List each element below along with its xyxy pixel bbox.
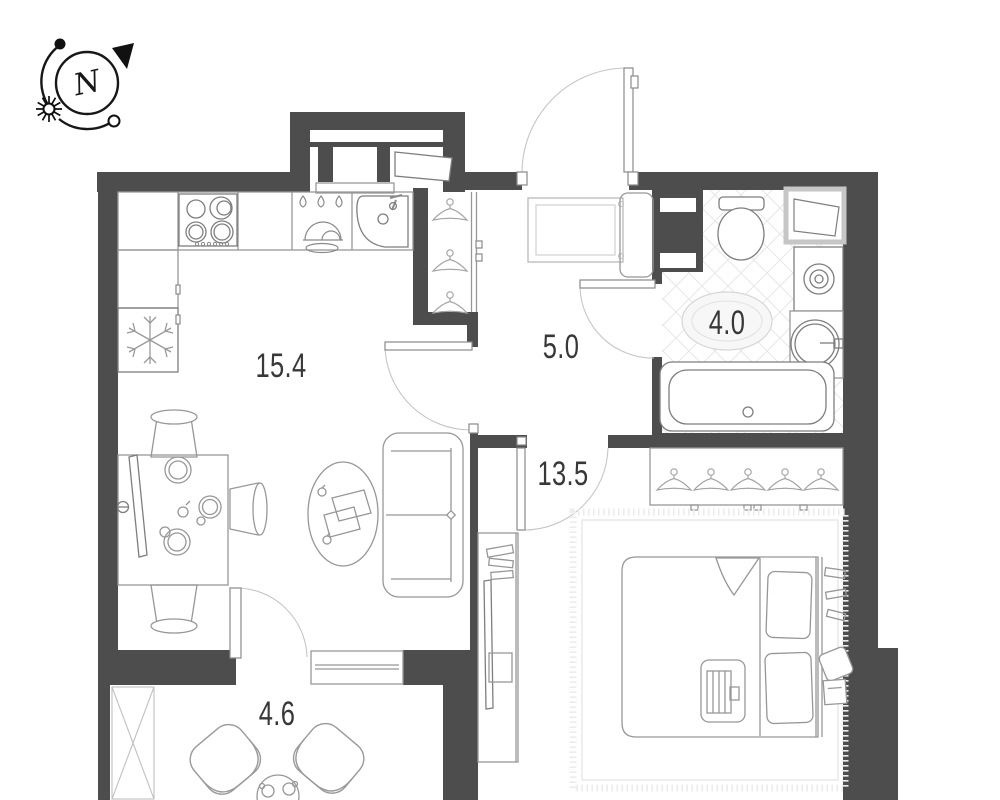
bathroom-door [580,280,655,358]
lounge [308,433,463,597]
chair [151,585,197,633]
dining-set [118,410,268,633]
bed [622,557,822,737]
entrance-door [517,68,638,185]
balcony-cabinet [112,687,154,799]
bedroom-wardrobe [650,448,843,510]
compass-letter: N [70,63,106,103]
compass-arrow [112,43,134,69]
balcony-area-label: 4.6 [259,696,296,733]
bedroom [478,448,854,788]
breakfast-tray [701,660,745,722]
coffee-table [308,462,378,566]
armchair-icon [183,718,267,800]
balcony-table [257,775,299,800]
balcony-window [311,651,403,684]
hanger-icon [433,292,467,313]
armchair-icon [287,717,371,800]
balcony-door [230,588,307,658]
washing-machine-icon [794,247,843,311]
toilet-icon [718,197,764,260]
entry-mat [528,198,624,262]
compass-north-icon: N [36,39,134,130]
snowflake-icon [127,316,173,364]
balcony [112,687,371,800]
chair [151,410,197,457]
bathroom-area-label: 4.0 [709,305,746,342]
hall-closet [433,192,482,313]
kitchen [118,192,413,372]
chair [230,483,267,535]
kitchen-living-area-label: 15.4 [255,348,306,385]
sofa [383,433,463,597]
hallway-area-label: 5.0 [543,329,580,366]
floor-plan-page: 15.4 5.0 4.0 13.5 4.6 N [0,0,1000,800]
kitchen-sink-icon [357,195,408,247]
hanger-icon [433,199,467,220]
living-room-door [385,342,478,433]
media-console [478,533,518,762]
dishwasher-icon [300,196,343,253]
bedroom-area-label: 13.5 [537,456,588,493]
sun-icon [36,96,62,122]
bathroom-window [786,189,844,242]
floor-plan: 15.4 5.0 4.0 13.5 4.6 N [0,0,1000,800]
hall-cabinet [620,193,653,277]
hanger-icon [433,250,467,271]
hallway-furniture [528,193,653,277]
fridge-icon [118,285,180,372]
bathtub-icon [660,362,834,431]
stove-icon [179,194,237,246]
